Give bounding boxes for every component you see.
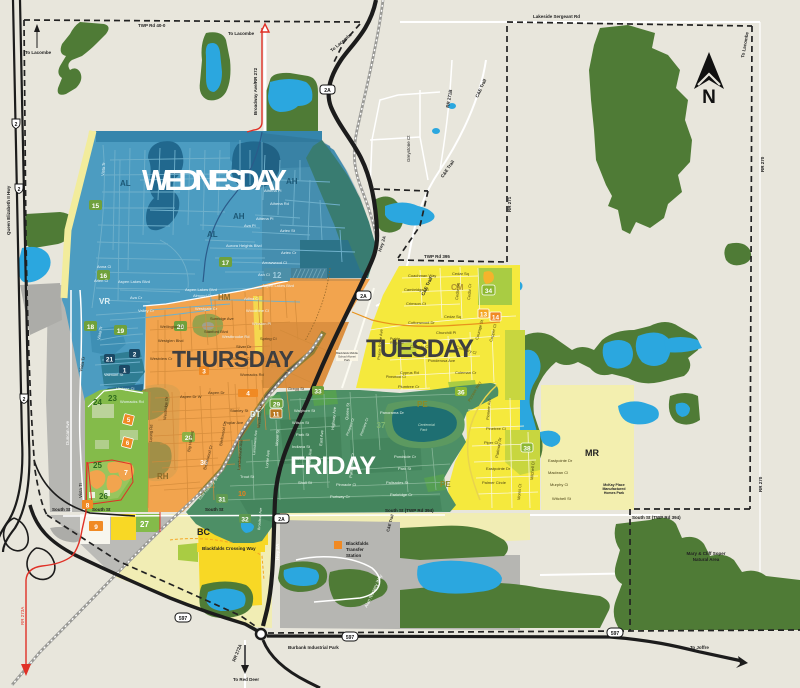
svg-text:33: 33 [314, 389, 322, 396]
svg-text:Westglen Blvd: Westglen Blvd [158, 338, 184, 343]
svg-text:Valmont St: Valmont St [104, 372, 124, 377]
svg-text:PE: PE [440, 480, 451, 489]
svg-text:Trout St: Trout St [240, 474, 255, 479]
svg-text:Arrowwood Cl: Arrowwood Cl [262, 260, 287, 265]
svg-text:25: 25 [93, 461, 102, 470]
svg-text:29: 29 [273, 402, 281, 409]
svg-text:N: N [702, 87, 716, 108]
svg-text:Waghorn St: Waghorn St [294, 408, 316, 413]
svg-text:HM: HM [218, 293, 231, 302]
svg-text:Centennial: Centennial [418, 423, 435, 427]
svg-text:Burbank Industrial Park: Burbank Industrial Park [288, 645, 339, 650]
svg-text:Cedar Sq: Cedar Sq [452, 271, 469, 276]
svg-text:Palisades St: Palisades St [386, 480, 409, 485]
svg-text:AL: AL [120, 179, 131, 188]
svg-text:7: 7 [124, 470, 128, 477]
svg-text:Aztec Cr: Aztec Cr [281, 250, 297, 255]
svg-text:Leung Rd: Leung Rd [148, 425, 154, 443]
svg-text:26: 26 [99, 492, 108, 501]
svg-text:4: 4 [246, 391, 250, 398]
svg-text:Vintage Cl: Vintage Cl [116, 386, 134, 391]
svg-text:34: 34 [485, 288, 493, 295]
svg-text:South St: South St [205, 507, 224, 512]
svg-text:Pinewood Cl: Pinewood Cl [386, 375, 406, 379]
svg-text:Ponderosa Ave: Ponderosa Ave [428, 358, 456, 363]
svg-text:Gregg St: Gregg St [288, 386, 305, 391]
svg-text:Pinnacle Cl: Pinnacle Cl [336, 482, 356, 487]
svg-text:36: 36 [457, 390, 465, 397]
svg-text:8: 8 [86, 503, 90, 510]
svg-text:RR 271: RR 271 [507, 196, 512, 212]
svg-text:Athena Pl: Athena Pl [264, 188, 281, 193]
svg-text:Aspen Dr W: Aspen Dr W [180, 394, 202, 399]
svg-text:Indiana St: Indiana St [292, 444, 311, 449]
svg-text:18: 18 [87, 324, 95, 331]
svg-text:Vista Tr: Vista Tr [78, 482, 83, 498]
svg-text:Park St: Park St [296, 432, 310, 437]
svg-text:AH: AH [286, 177, 298, 186]
svg-text:38: 38 [523, 446, 531, 453]
svg-text:2: 2 [15, 122, 18, 128]
svg-text:Coachman Way: Coachman Way [408, 273, 436, 278]
svg-text:597: 597 [179, 616, 188, 622]
svg-text:Silver Dr: Silver Dr [236, 344, 252, 349]
svg-text:Ridge Cl: Ridge Cl [390, 341, 404, 345]
svg-text:Wellington Cl: Wellington Cl [160, 324, 184, 329]
svg-text:VR: VR [99, 297, 110, 306]
svg-text:Anna Cl: Anna Cl [97, 264, 111, 269]
svg-text:23: 23 [108, 394, 117, 403]
svg-text:Park St: Park St [398, 466, 412, 471]
svg-text:Westgate Cr: Westgate Cr [195, 306, 218, 311]
svg-text:To Lacombe: To Lacombe [228, 31, 255, 36]
svg-text:AL: AL [207, 230, 218, 239]
svg-text:Ava Cr: Ava Cr [130, 295, 143, 300]
svg-text:Stanley St: Stanley St [230, 408, 249, 413]
svg-text:Murphy Cl: Murphy Cl [550, 482, 568, 487]
svg-text:Woodbine Cl: Woodbine Cl [246, 308, 269, 313]
svg-text:RR 270: RR 270 [758, 476, 763, 492]
svg-text:Cottonwood Dr: Cottonwood Dr [408, 320, 435, 325]
svg-text:Athena Rd: Athena Rd [270, 201, 289, 206]
svg-text:South St (TWP Rd 394): South St (TWP Rd 394) [385, 508, 434, 513]
svg-text:Westbrooke Rd: Westbrooke Rd [222, 334, 250, 339]
svg-text:Pinetree Cl: Pinetree Cl [486, 426, 506, 431]
svg-text:Maclean Cl: Maclean Cl [548, 470, 568, 475]
svg-text:Pondside Cr: Pondside Cr [394, 454, 417, 459]
svg-text:Witchell St: Witchell St [552, 496, 572, 501]
svg-text:RR 273A: RR 273A [20, 607, 25, 625]
svg-text:Panorama Dr: Panorama Dr [380, 410, 404, 415]
svg-text:Greystone Ct: Greystone Ct [406, 135, 411, 162]
svg-text:TWP Rd 40-0: TWP Rd 40-0 [138, 23, 166, 28]
svg-text:Valley Cr: Valley Cr [138, 308, 155, 313]
svg-text:13: 13 [480, 312, 488, 319]
svg-text:AH: AH [233, 212, 245, 221]
svg-text:Aspen Lakes Blvd: Aspen Lakes Blvd [118, 279, 150, 284]
svg-text:Wilson St: Wilson St [292, 420, 310, 425]
svg-text:Spring Cl: Spring Cl [260, 336, 277, 341]
svg-text:To Red Deer: To Red Deer [233, 677, 259, 682]
svg-text:597: 597 [346, 635, 355, 641]
svg-text:Eastpointe Dr: Eastpointe Dr [486, 466, 511, 471]
svg-text:Aspen Lakes Blvd: Aspen Lakes Blvd [185, 287, 217, 292]
svg-text:Shull St: Shull St [298, 480, 313, 485]
svg-text:37: 37 [377, 421, 386, 430]
svg-text:Hwy 2A: Hwy 2A [275, 543, 280, 560]
svg-text:1: 1 [123, 368, 127, 375]
svg-text:Homes Park: Homes Park [604, 491, 624, 495]
svg-text:Park: Park [420, 428, 427, 432]
svg-text:Natural Area: Natural Area [693, 557, 720, 562]
svg-text:Lakeside Sergeant Rd: Lakeside Sergeant Rd [533, 14, 580, 19]
svg-text:RH: RH [157, 472, 169, 481]
svg-text:Ava Pl: Ava Pl [244, 223, 256, 228]
svg-text:Arlen Cl: Arlen Cl [94, 278, 108, 283]
svg-text:31: 31 [218, 497, 226, 504]
svg-text:Station: Station [346, 553, 362, 558]
svg-text:Cassidy Ct: Cassidy Ct [410, 344, 430, 349]
svg-text:Transfer: Transfer [346, 547, 364, 552]
svg-text:Almond Cr: Almond Cr [193, 293, 213, 298]
svg-text:Cambridge Cl: Cambridge Cl [404, 287, 429, 292]
svg-text:9: 9 [94, 524, 98, 531]
svg-text:BC: BC [197, 527, 210, 537]
svg-text:Adina Cl: Adina Cl [244, 296, 259, 301]
svg-text:Mary & Cliff Soper: Mary & Cliff Soper [686, 551, 725, 556]
svg-text:Stanford Blvd: Stanford Blvd [204, 329, 228, 334]
svg-text:MR: MR [585, 448, 599, 458]
svg-text:11: 11 [273, 412, 280, 419]
svg-text:17: 17 [222, 260, 230, 267]
svg-text:15: 15 [92, 203, 100, 210]
svg-text:Park: Park [344, 358, 350, 362]
svg-text:24: 24 [93, 398, 102, 407]
svg-text:Blackfalds: Blackfalds [346, 541, 369, 546]
svg-text:Winston Pl: Winston Pl [252, 321, 271, 326]
svg-text:To Lacombe: To Lacombe [25, 50, 52, 55]
svg-text:RR 270: RR 270 [760, 156, 765, 172]
svg-text:Portway Cr: Portway Cr [330, 494, 350, 499]
svg-text:21: 21 [106, 357, 114, 364]
svg-text:2: 2 [18, 187, 21, 193]
svg-text:Blackfalds Crossing Way: Blackfalds Crossing Way [202, 546, 256, 551]
svg-text:27: 27 [140, 520, 149, 529]
svg-text:Westview Cr: Westview Cr [150, 356, 173, 361]
svg-text:South St (TWP Rd 394): South St (TWP Rd 394) [632, 515, 681, 520]
svg-text:Aztec St: Aztec St [280, 228, 296, 233]
svg-text:Poplar Ave: Poplar Ave [224, 420, 244, 425]
svg-text:19: 19 [117, 328, 125, 335]
svg-text:TWP Rd 395: TWP Rd 395 [424, 254, 450, 259]
svg-text:To Joffre: To Joffre [690, 645, 709, 650]
svg-text:Coleman Cr: Coleman Cr [455, 370, 477, 375]
svg-text:Sunrise Cl: Sunrise Cl [232, 356, 251, 361]
svg-text:Palmer Circle: Palmer Circle [482, 480, 507, 485]
svg-text:South St: South St [92, 507, 111, 512]
svg-text:South St: South St [52, 507, 71, 512]
svg-text:Churchill Pl: Churchill Pl [436, 330, 456, 335]
svg-text:14: 14 [492, 315, 500, 322]
svg-text:Crimson Ct: Crimson Ct [406, 301, 427, 306]
svg-text:Aurora Heights Blvd: Aurora Heights Blvd [226, 243, 262, 248]
svg-text:12: 12 [273, 271, 282, 280]
svg-text:Parkridge Cr: Parkridge Cr [390, 492, 413, 497]
svg-text:Queen Elizabeth II Hwy: Queen Elizabeth II Hwy [6, 185, 11, 235]
svg-text:Cedar Sq: Cedar Sq [444, 314, 461, 319]
svg-text:2A: 2A [324, 88, 331, 94]
svg-text:Womacks Rd: Womacks Rd [120, 399, 144, 404]
svg-text:Aspen Dr: Aspen Dr [208, 390, 225, 395]
svg-text:Broadway Ave/RR 272: Broadway Ave/RR 272 [253, 67, 258, 115]
svg-text:2: 2 [23, 397, 26, 403]
svg-text:2: 2 [133, 352, 137, 359]
svg-text:PE: PE [417, 400, 428, 409]
svg-text:2A: 2A [278, 517, 285, 523]
svg-text:Eastpointe Dr: Eastpointe Dr [548, 458, 573, 463]
svg-text:Athena Pl: Athena Pl [256, 216, 273, 221]
svg-text:Womacks Rd: Womacks Rd [240, 372, 264, 377]
svg-text:2A: 2A [360, 294, 367, 300]
svg-text:32: 32 [241, 517, 249, 524]
svg-text:Sunridge Ave: Sunridge Ave [210, 316, 234, 321]
svg-text:Ash Cl: Ash Cl [258, 272, 270, 277]
svg-text:Aspen Lakes Blvd: Aspen Lakes Blvd [262, 283, 294, 288]
svg-text:597: 597 [611, 631, 620, 637]
svg-text:Plumtree Cr: Plumtree Cr [398, 384, 420, 389]
svg-text:10: 10 [238, 491, 246, 498]
svg-text:Duncan Ave: Duncan Ave [65, 420, 70, 445]
